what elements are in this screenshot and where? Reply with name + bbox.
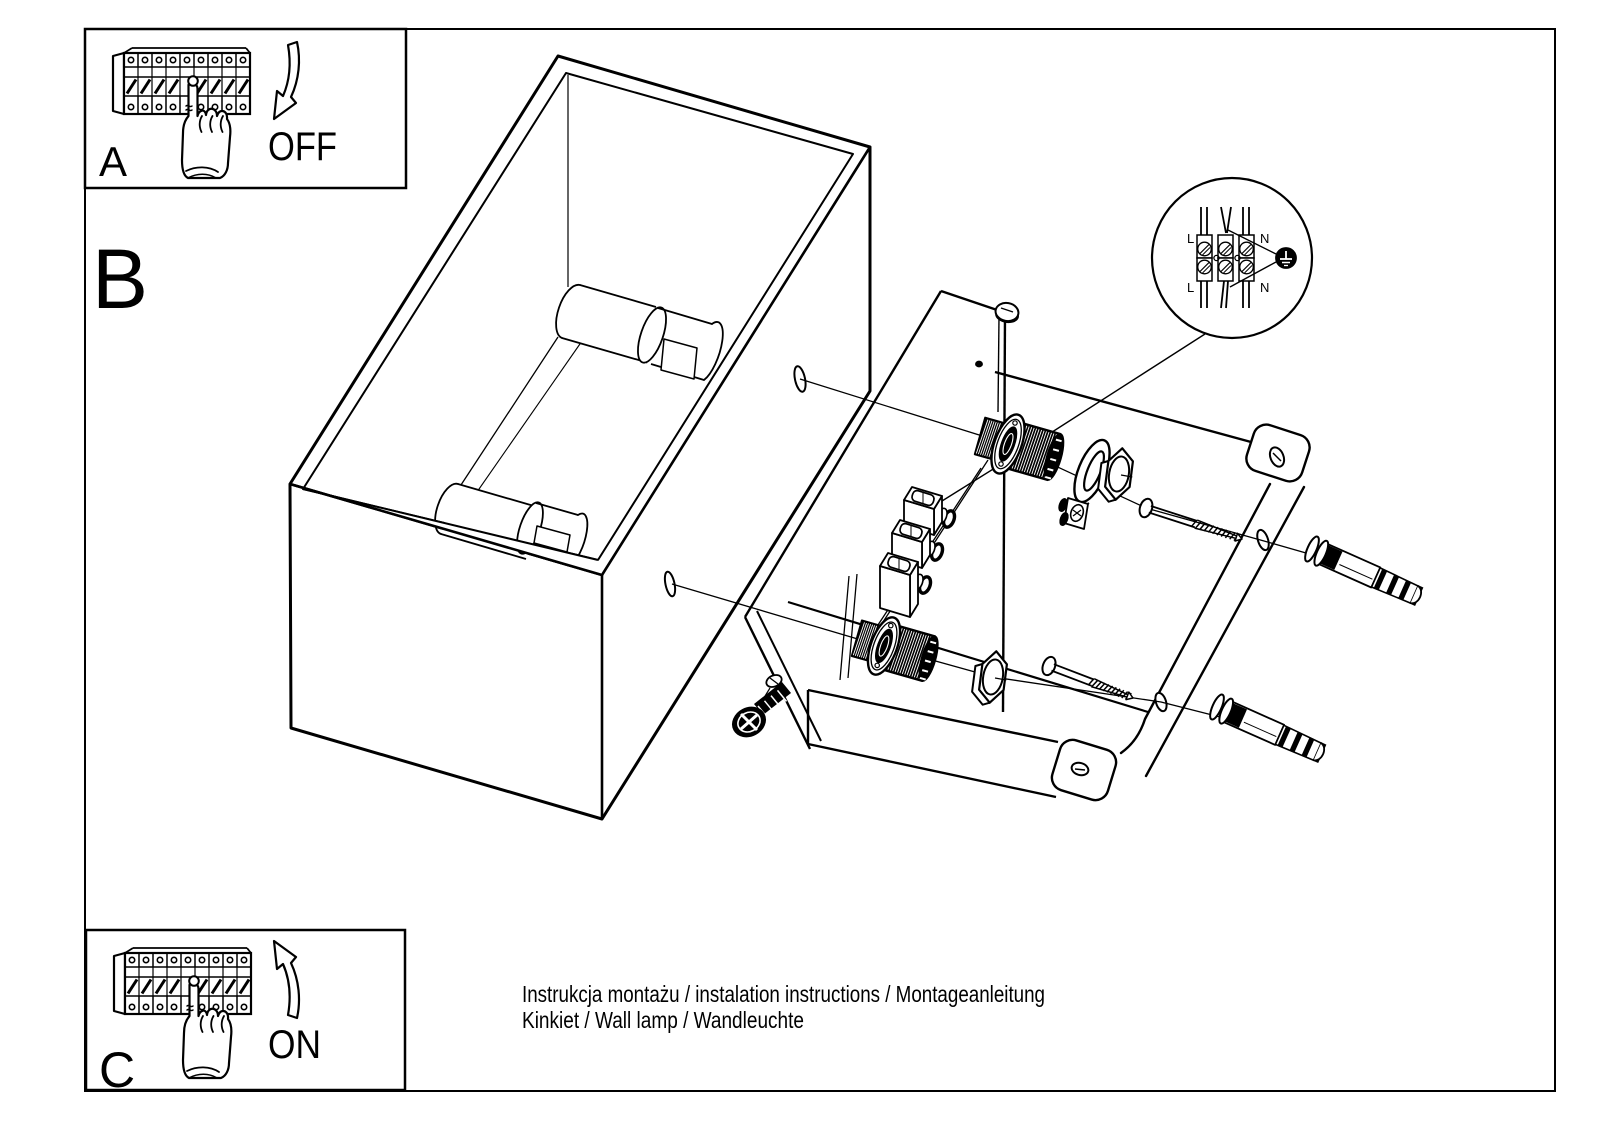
svg-text:OFF: OFF: [268, 125, 337, 169]
svg-text:C: C: [99, 1042, 135, 1098]
svg-text:N: N: [1260, 231, 1269, 246]
svg-text:A: A: [99, 138, 127, 185]
svg-text:Kinkiet / Wall lamp / Wandleuc: Kinkiet / Wall lamp / Wandleuchte: [522, 1007, 804, 1033]
svg-text:ON: ON: [268, 1023, 321, 1067]
svg-text:L: L: [1187, 231, 1194, 246]
svg-text:N: N: [1260, 280, 1269, 295]
svg-text:Instrukcja montażu / instalati: Instrukcja montażu / instalation instruc…: [522, 981, 1045, 1007]
svg-text:L: L: [1187, 280, 1194, 295]
svg-text:B: B: [92, 232, 148, 326]
